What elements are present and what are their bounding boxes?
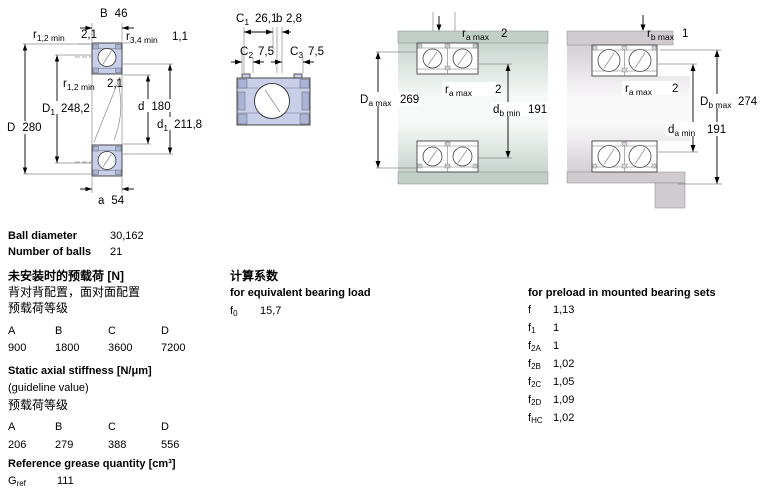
- dim-C2: C27,5: [240, 46, 274, 60]
- number-of-balls-value: 21: [110, 246, 122, 259]
- preload-unmounted-subtitle: 背对背配置，面对面配置: [8, 286, 140, 299]
- factor-f2a-symbol: f2A: [528, 340, 541, 355]
- drawing-section-detail: C126,1 b2,8 C27,5 C37,5: [228, 0, 348, 140]
- dim-b: b2,8: [276, 13, 302, 25]
- bearing-datasheet: B46 r1,2 min2,1 r3,4 min1,1 r1,2 min2,1 …: [0, 0, 766, 494]
- preload-header-d: D: [161, 325, 169, 338]
- grease-value: 111: [57, 475, 74, 488]
- preload-class-label: 预载荷等级: [8, 302, 68, 315]
- grease-title: Reference grease quantity [cm³]: [8, 458, 176, 471]
- f0-value: 15,7: [260, 305, 281, 318]
- stiffness-value-d: 556: [161, 439, 179, 452]
- stiffness-class-label: 预载荷等级: [8, 399, 68, 412]
- dim-rb-max: rb max1: [647, 28, 688, 42]
- factor-f2b-value: 1,02: [553, 358, 574, 371]
- grease-symbol: Gref: [8, 475, 26, 490]
- stiffness-header-a: A: [8, 421, 15, 434]
- stiffness-value-a: 206: [8, 439, 26, 452]
- dim-C1: C126,1: [236, 13, 277, 27]
- stiffness-subtitle: (guideline value): [8, 382, 89, 395]
- dim-a: a54: [98, 195, 125, 207]
- bearing-set-top: [592, 45, 657, 76]
- stiffness-value-b: 279: [55, 439, 73, 452]
- drawing-mounted-pair-housing: ra max2 ra max2 Da max269 db min191: [355, 0, 555, 212]
- factor-f-value: 1,13: [553, 304, 574, 317]
- dim-C3: C37,5: [290, 46, 324, 60]
- dim-r34: r3,4 min1,1: [126, 31, 188, 45]
- dim-B: B46: [100, 8, 127, 20]
- factor-f-symbol: f: [528, 304, 531, 319]
- factor-f2d-value: 1,09: [553, 394, 574, 407]
- bearing-set-top: [417, 43, 478, 74]
- factor-fhc-value: 1,02: [553, 412, 574, 425]
- ball-diameter-label: Ball diameter: [8, 230, 77, 243]
- preload-unmounted-title: 未安装时的预载荷 [N]: [8, 270, 124, 283]
- preload-value-d: 7200: [161, 342, 185, 355]
- calc-factors-title: 计算系数: [230, 270, 278, 283]
- factor-f2b-symbol: f2B: [528, 358, 541, 373]
- f0-symbol: f0: [230, 305, 238, 320]
- dim-r12-mid: r1,2 min2,1: [63, 78, 123, 92]
- factor-f1-symbol: f1: [528, 322, 536, 337]
- preload-value-b: 1800: [55, 342, 79, 355]
- preload-value-a: 900: [8, 342, 26, 355]
- dim-ra-max-top: ra max2: [462, 28, 507, 42]
- preload-factors-title: for preload in mounted bearing sets: [528, 287, 716, 300]
- preload-header-a: A: [8, 325, 15, 338]
- dim-D1: D1248,2: [42, 103, 90, 117]
- bearing-set-bottom: [417, 141, 478, 172]
- stiffness-value-c: 388: [108, 439, 126, 452]
- dim-r12-top: r1,2 min2,1: [33, 29, 97, 43]
- factor-f2a-value: 1: [553, 340, 559, 353]
- factor-f2c-symbol: f2C: [528, 376, 541, 391]
- bearing-section: [237, 74, 310, 125]
- factor-fhc-symbol: fHC: [528, 412, 543, 427]
- stiffness-header-b: B: [55, 421, 62, 434]
- number-of-balls-label: Number of balls: [8, 246, 91, 259]
- calc-factors-subtitle: for equivalent bearing load: [230, 287, 371, 300]
- dim-D: D280: [7, 122, 42, 134]
- drawing-mounted-pair-shaft: rb max1 ra max2 Db max274 da min191: [562, 0, 766, 215]
- drawing-bearing-cross-section: B46 r1,2 min2,1 r3,4 min1,1 r1,2 min2,1 …: [0, 0, 228, 216]
- ball-diameter-value: 30,162: [110, 230, 144, 243]
- stiffness-header-d: D: [161, 421, 169, 434]
- preload-value-c: 3600: [108, 342, 132, 355]
- preload-header-c: C: [108, 325, 116, 338]
- bearing-bottom-section: [92, 145, 122, 176]
- bearing-set-bottom: [592, 141, 657, 172]
- preload-header-b: B: [55, 325, 62, 338]
- stiffness-title: Static axial stiffness [N/μm]: [8, 365, 152, 378]
- dim-d: d180: [138, 101, 171, 113]
- factor-f2c-value: 1,05: [553, 376, 574, 389]
- factor-f1-value: 1: [553, 322, 559, 335]
- stiffness-header-c: C: [108, 421, 116, 434]
- bearing-top-section: [92, 43, 122, 74]
- factor-f2d-symbol: f2D: [528, 394, 541, 409]
